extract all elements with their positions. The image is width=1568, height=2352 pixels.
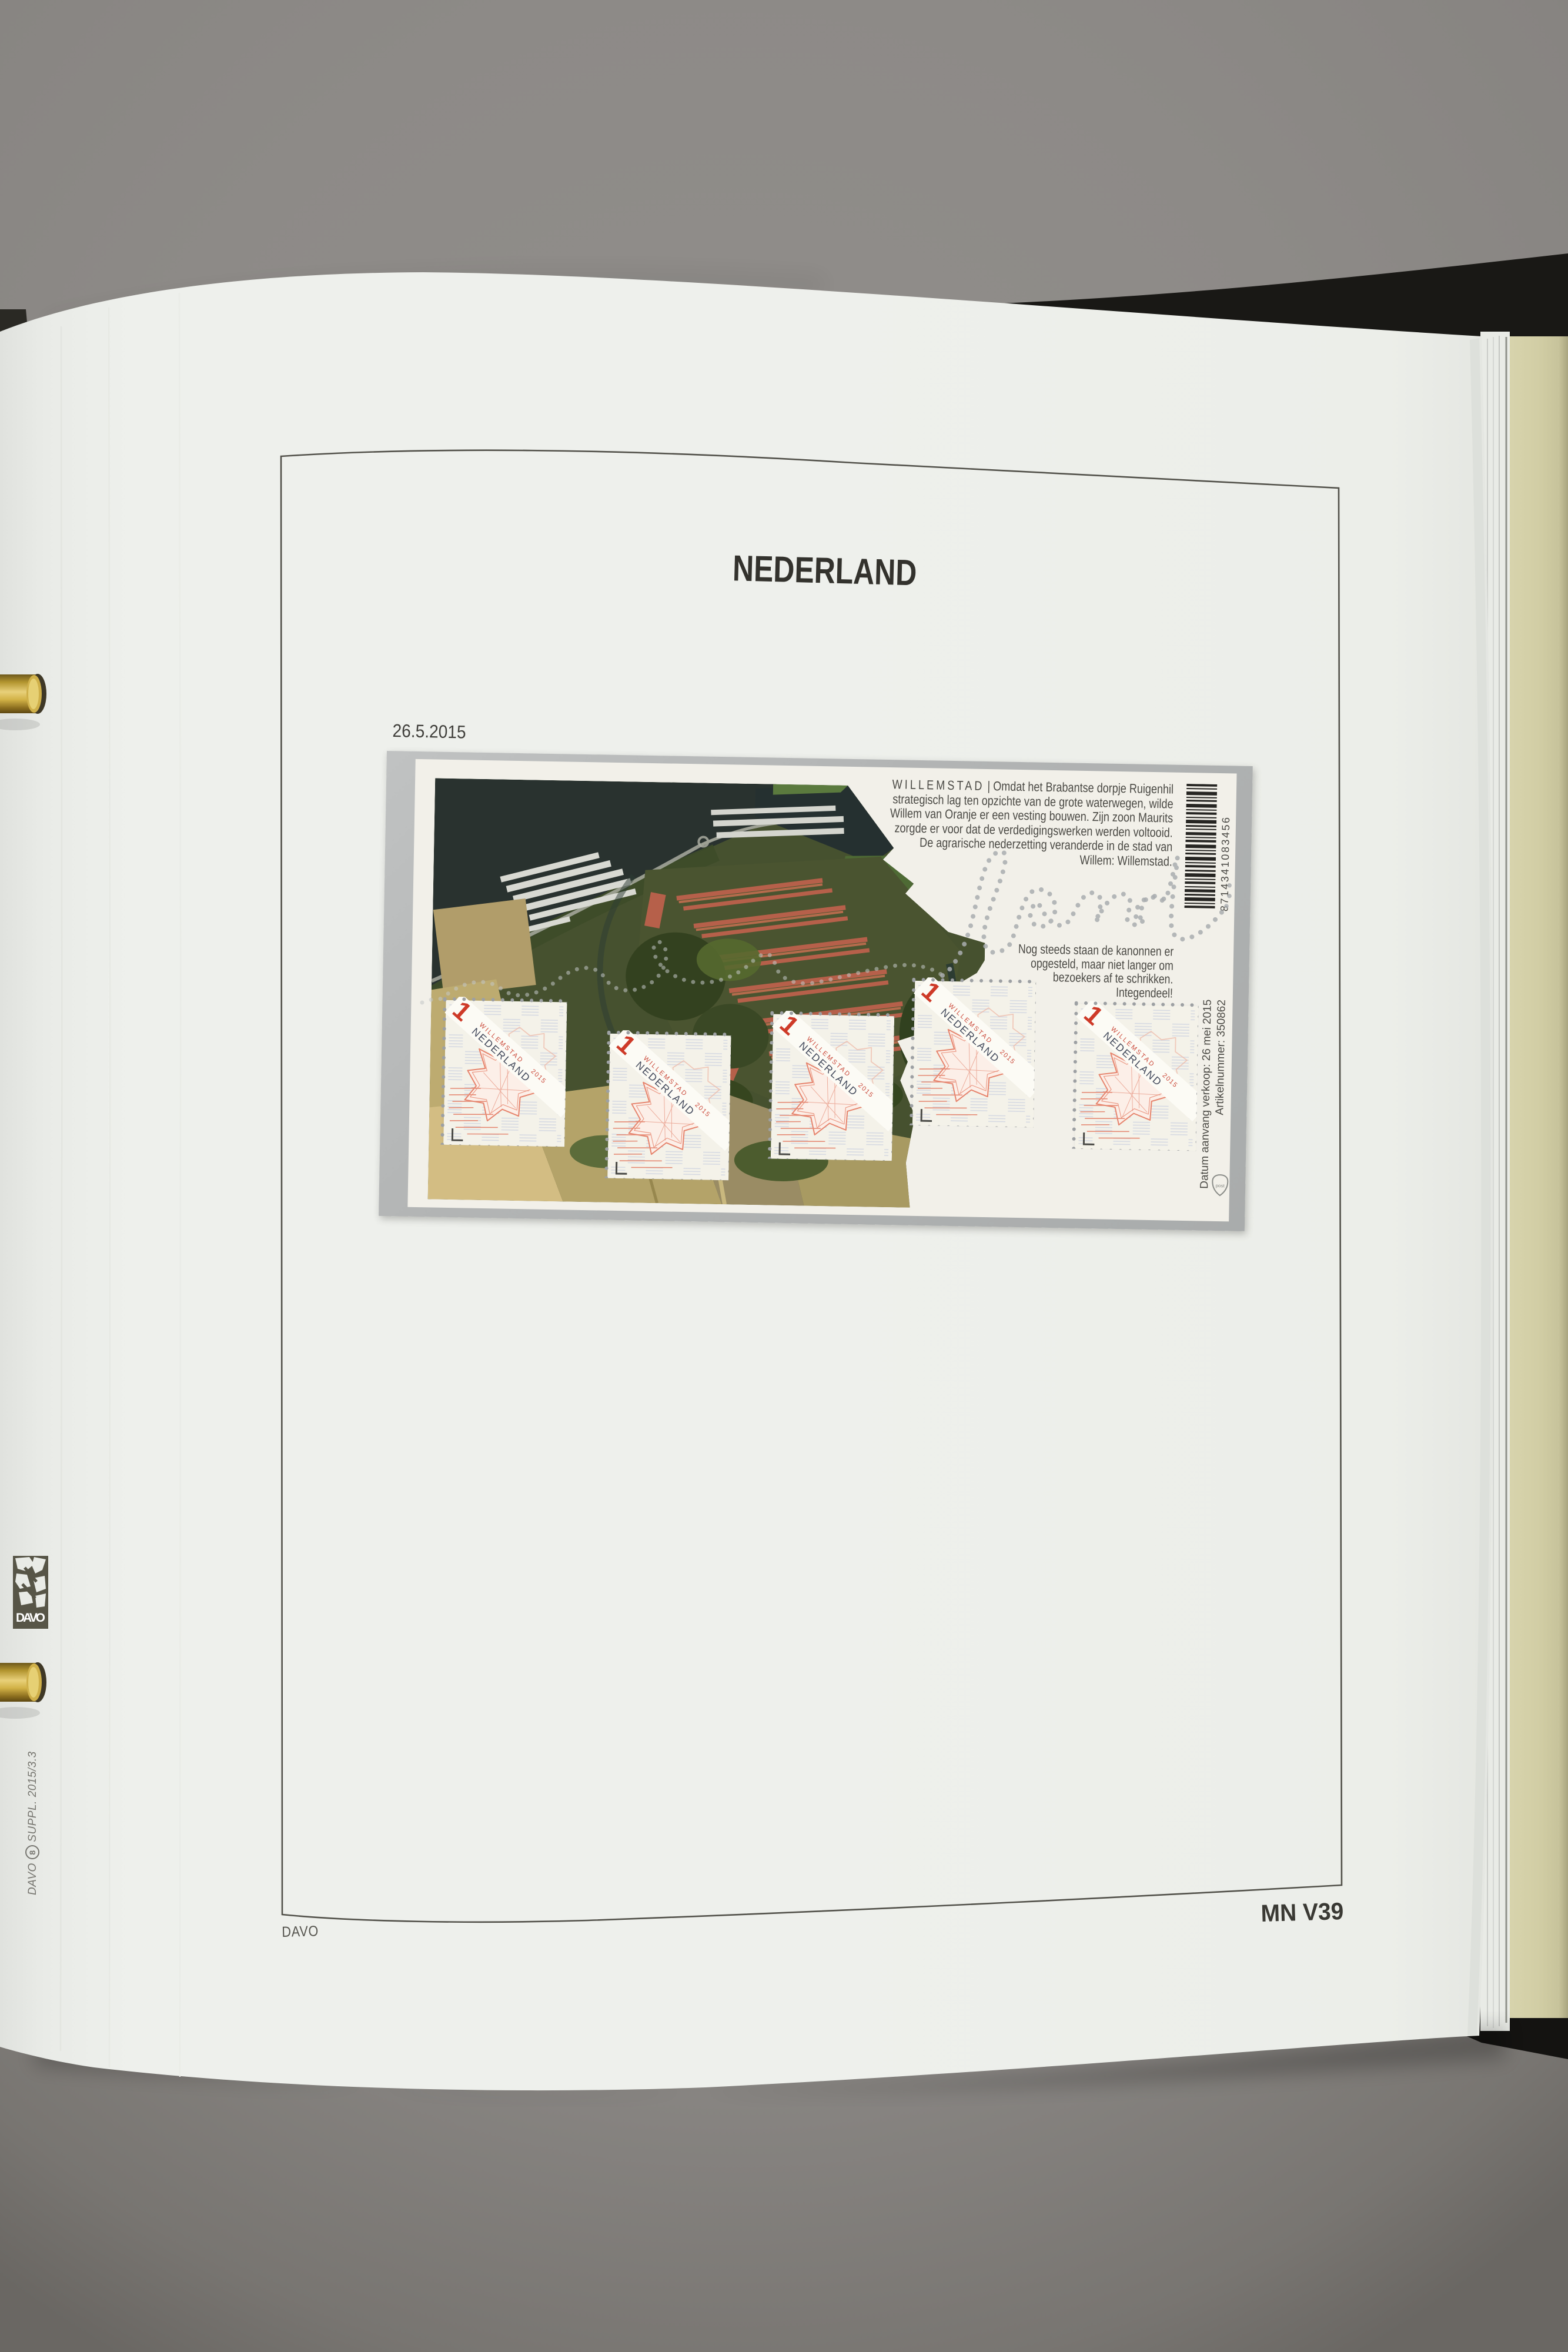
svg-text:DAVO: DAVO (16, 1611, 45, 1625)
svg-text:post: post (1216, 1183, 1225, 1188)
